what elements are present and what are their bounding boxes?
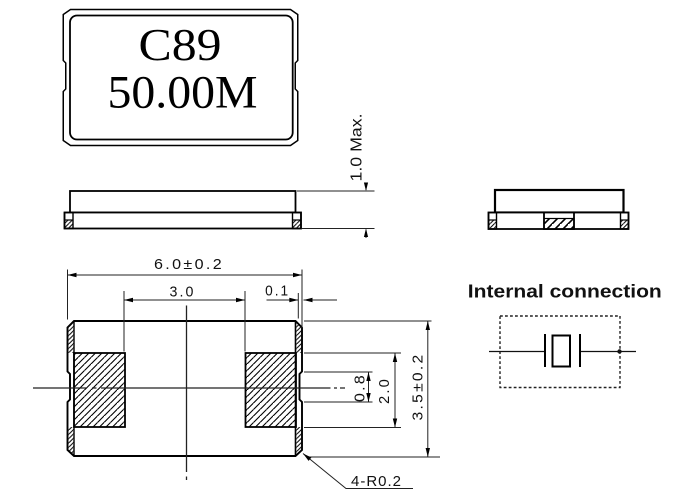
svg-text:2.0: 2.0 (376, 377, 393, 404)
svg-text:4-R0.2: 4-R0.2 (351, 473, 402, 490)
svg-text:1.0 Max.: 1.0 Max. (349, 114, 366, 182)
svg-text:3.5±0.2: 3.5±0.2 (410, 353, 427, 421)
svg-text:Internal connection: Internal connection (468, 282, 662, 302)
svg-text:50.00M: 50.00M (108, 67, 258, 119)
svg-text:0.8: 0.8 (352, 373, 369, 402)
svg-text:C89: C89 (139, 20, 222, 70)
svg-text:6.0±0.2: 6.0±0.2 (154, 256, 224, 273)
svg-text:0.1: 0.1 (265, 282, 290, 299)
svg-text:3.0: 3.0 (170, 283, 196, 300)
